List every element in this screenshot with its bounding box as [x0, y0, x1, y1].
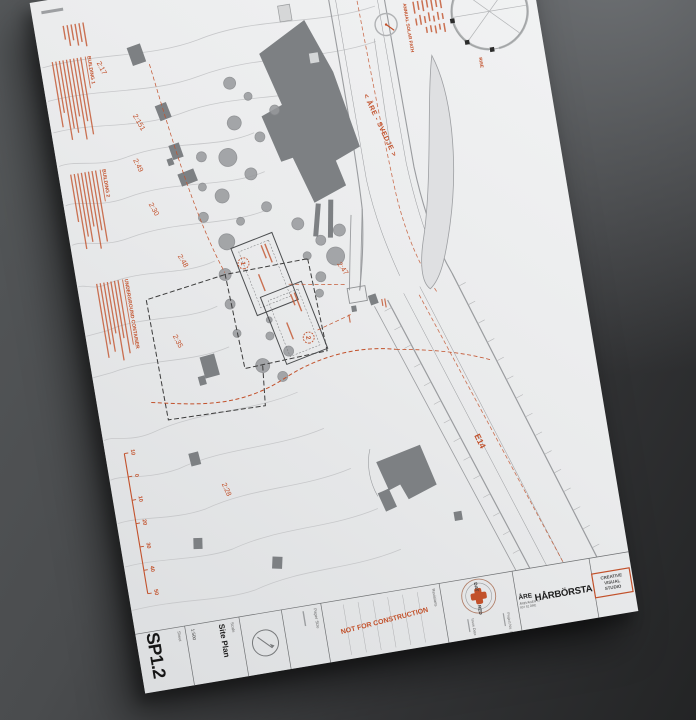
parcel-2-49: 2:49: [131, 157, 145, 174]
solar-legend-rows: [412, 0, 446, 36]
corner-notes: [41, 5, 87, 53]
logo-text-right: RED: [477, 605, 484, 616]
parcel-2-17: 2:17: [95, 60, 109, 77]
notes-building-2: BUILDING 2: [70, 169, 119, 252]
project-title-block: ÅRE ÅREVÄGEN 57 837 52 ÅRE HÅRBÖRSTA: [518, 580, 594, 609]
studio-stamp: CREATIVE VISUAL STUDIO: [592, 567, 639, 598]
plot-2-number: 2: [304, 335, 312, 340]
sun-clock-icon: [373, 12, 398, 37]
scale-tick-0: 10: [129, 449, 136, 456]
notes-underground-container: UNDERGROUND CONTAINER: [96, 279, 142, 363]
sheet-number-cell: Sheet SP1.2: [142, 628, 188, 680]
logo-cell: DAT RED Project No. 1 Issue Date: [459, 575, 513, 640]
notes-building-2-header: BUILDING 2: [100, 169, 111, 198]
scale-tick-3: 20: [140, 519, 147, 526]
photo-background: 1 2: [0, 0, 696, 720]
plot-1: 1: [229, 230, 299, 318]
bus-shelter: [368, 293, 379, 305]
farm-building-cluster: [365, 436, 462, 534]
scale-tick-4: 30: [144, 542, 151, 549]
project-name: HÅRBÖRSTA: [534, 583, 594, 604]
issue-date-label: Issue Date: [470, 618, 477, 636]
not-for-construction-stamp: NOT FOR CONSTRUCTION: [340, 607, 429, 636]
notes-underground-header: UNDERGROUND CONTAINER: [123, 279, 141, 350]
notes-building-1: BUILDING 1: [52, 56, 105, 143]
sheet-label: Sheet: [176, 631, 183, 643]
parcel-2-28: 2:28: [220, 481, 234, 497]
svedje-road-label: < ÅRE - SVEDJE >: [362, 92, 400, 158]
solar-caption: ANNUAL SOLAR PATH: [402, 3, 415, 54]
scale-tick-1: 0: [133, 474, 139, 478]
paper-size-cell: Paper Size: [302, 608, 321, 631]
parcel-2-48: 2:48: [176, 252, 191, 269]
sheet-title: Site Plan: [217, 623, 231, 658]
parcel-2-35: 2:35: [171, 333, 185, 350]
e14-road: [371, 256, 601, 586]
sheet-number: SP1.2: [142, 631, 169, 680]
site-plan: 1 2: [30, 0, 639, 693]
scale-tick-5: 40: [148, 565, 155, 572]
parcel-2-30: 2:30: [147, 201, 162, 218]
scale-value: 1:500: [190, 628, 197, 641]
north-arrow: [251, 628, 281, 658]
drawing-sheet: 1 2: [30, 0, 639, 693]
scale-tick-2: 10: [137, 495, 144, 502]
parcel-2-47: 2:47: [335, 260, 350, 277]
parcel-2-151: 2:151: [131, 112, 148, 132]
project-no-label: Project No. 1: [506, 612, 513, 633]
notes-building-1-header: BUILDING 1: [85, 56, 96, 85]
title-bar: CREATIVE VISUAL STUDIO ÅRE ÅREVÄGEN 57 8…: [135, 551, 638, 694]
plot-1-number: 1: [239, 261, 247, 266]
scale-tick-6: 50: [152, 589, 159, 596]
revisions-label: Revisions: [431, 588, 439, 607]
sheet-title-cell: Scale Site Plan 1:500: [190, 622, 240, 663]
scale-label: Scale: [230, 622, 237, 634]
rise-label: RISE: [478, 57, 485, 68]
logo-text-left: DAT: [473, 582, 479, 592]
paper-size-label: Paper Size: [312, 608, 320, 630]
scale-bar: 10 0 10 20 30 40 50: [124, 449, 159, 597]
e14-road-label: E14: [472, 432, 488, 450]
solar-compass: RISE ANNUAL SOLAR PATH: [365, 0, 547, 146]
